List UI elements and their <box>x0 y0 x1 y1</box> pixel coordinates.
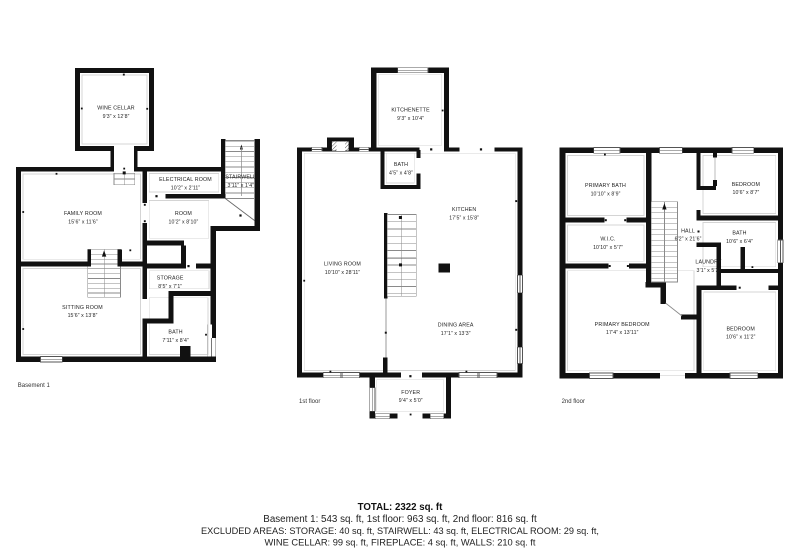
svg-text:PRIMARY BATH: PRIMARY BATH <box>585 183 626 189</box>
svg-text:FAMILY ROOM: FAMILY ROOM <box>64 211 102 217</box>
svg-text:BATH: BATH <box>168 330 182 336</box>
svg-text:6’2” x 21’6”: 6’2” x 21’6” <box>675 237 702 243</box>
svg-text:17’4” x 13’11”: 17’4” x 13’11” <box>606 330 639 336</box>
svg-text:DINING AREA: DINING AREA <box>438 323 474 329</box>
svg-text:4’5” x 4’8”: 4’5” x 4’8” <box>389 170 413 176</box>
svg-text:10’2” x 2’11”: 10’2” x 2’11” <box>171 185 201 191</box>
svg-text:KITCHENETTE: KITCHENETTE <box>391 108 430 114</box>
svg-text:10’10” x 5’7”: 10’10” x 5’7” <box>593 245 623 251</box>
svg-text:PRIMARY BEDROOM: PRIMARY BEDROOM <box>595 322 650 328</box>
svg-text:WINE CELLAR: WINE CELLAR <box>97 106 135 112</box>
svg-text:3’1” x 5’3”: 3’1” x 5’3” <box>697 268 721 274</box>
svg-text:SITTING ROOM: SITTING ROOM <box>62 305 103 311</box>
svg-text:1st floor: 1st floor <box>299 399 320 405</box>
svg-text:LIVING ROOM: LIVING ROOM <box>324 262 361 268</box>
svg-text:STORAGE: STORAGE <box>157 276 184 282</box>
svg-text:10’10” x 28’11”: 10’10” x 28’11” <box>325 270 361 276</box>
svg-text:FOYER: FOYER <box>401 390 420 396</box>
svg-text:2nd floor: 2nd floor <box>562 399 585 405</box>
svg-text:10’6” x 8’7”: 10’6” x 8’7” <box>732 190 759 196</box>
svg-text:EXCLUDED AREAS: STORAGE: 40 sq: EXCLUDED AREAS: STORAGE: 40 sq. ft, STAI… <box>201 526 599 536</box>
svg-text:TOTAL: 2322 sq. ft: TOTAL: 2322 sq. ft <box>358 502 443 513</box>
svg-text:LAUNDRY: LAUNDRY <box>695 260 722 266</box>
svg-text:BEDROOM: BEDROOM <box>732 182 760 188</box>
svg-text:ELECTRICAL ROOM: ELECTRICAL ROOM <box>159 177 212 183</box>
svg-text:Basement 1: Basement 1 <box>18 383 51 389</box>
svg-text:10’2” x 8’10”: 10’2” x 8’10” <box>168 219 198 225</box>
svg-text:9’3” x 10’4”: 9’3” x 10’4” <box>397 116 424 122</box>
svg-text:KITCHEN: KITCHEN <box>452 207 476 213</box>
svg-text:ROOM: ROOM <box>175 211 192 217</box>
svg-text:WINE CELLAR: 99 sq. ft, FIREPL: WINE CELLAR: 99 sq. ft, FIREPLACE: 4 sq.… <box>265 538 536 548</box>
svg-text:17’1” x 13’3”: 17’1” x 13’3” <box>441 331 471 337</box>
svg-text:W.I.C.: W.I.C. <box>600 237 615 243</box>
svg-text:3’11” x 1’4”: 3’11” x 1’4” <box>228 183 255 189</box>
svg-text:10’6” x 6’4”: 10’6” x 6’4” <box>726 239 753 245</box>
svg-text:17’5” x 15’8”: 17’5” x 15’8” <box>449 216 479 222</box>
svg-text:BATH: BATH <box>394 162 408 168</box>
svg-text:10’6” x 11’2”: 10’6” x 11’2” <box>726 335 756 341</box>
svg-text:BEDROOM: BEDROOM <box>726 326 754 332</box>
svg-text:Basement 1: 543 sq. ft, 1st fl: Basement 1: 543 sq. ft, 1st floor: 963 s… <box>263 514 537 525</box>
svg-text:15’6” x 13’8”: 15’6” x 13’8” <box>68 313 98 319</box>
svg-text:10’10” x 8’9”: 10’10” x 8’9” <box>591 191 621 197</box>
svg-text:9’4” x 5’0”: 9’4” x 5’0” <box>399 398 423 404</box>
svg-text:15’6” x 11’6”: 15’6” x 11’6” <box>68 219 98 225</box>
svg-text:STAIRWELL: STAIRWELL <box>225 175 256 181</box>
svg-text:7’11” x 8’4”: 7’11” x 8’4” <box>162 338 189 344</box>
svg-text:HALL: HALL <box>681 228 695 234</box>
svg-text:8’5” x 7’1”: 8’5” x 7’1” <box>158 284 182 290</box>
svg-text:9’3” x 12’8”: 9’3” x 12’8” <box>103 114 130 120</box>
svg-text:BATH: BATH <box>732 230 746 236</box>
